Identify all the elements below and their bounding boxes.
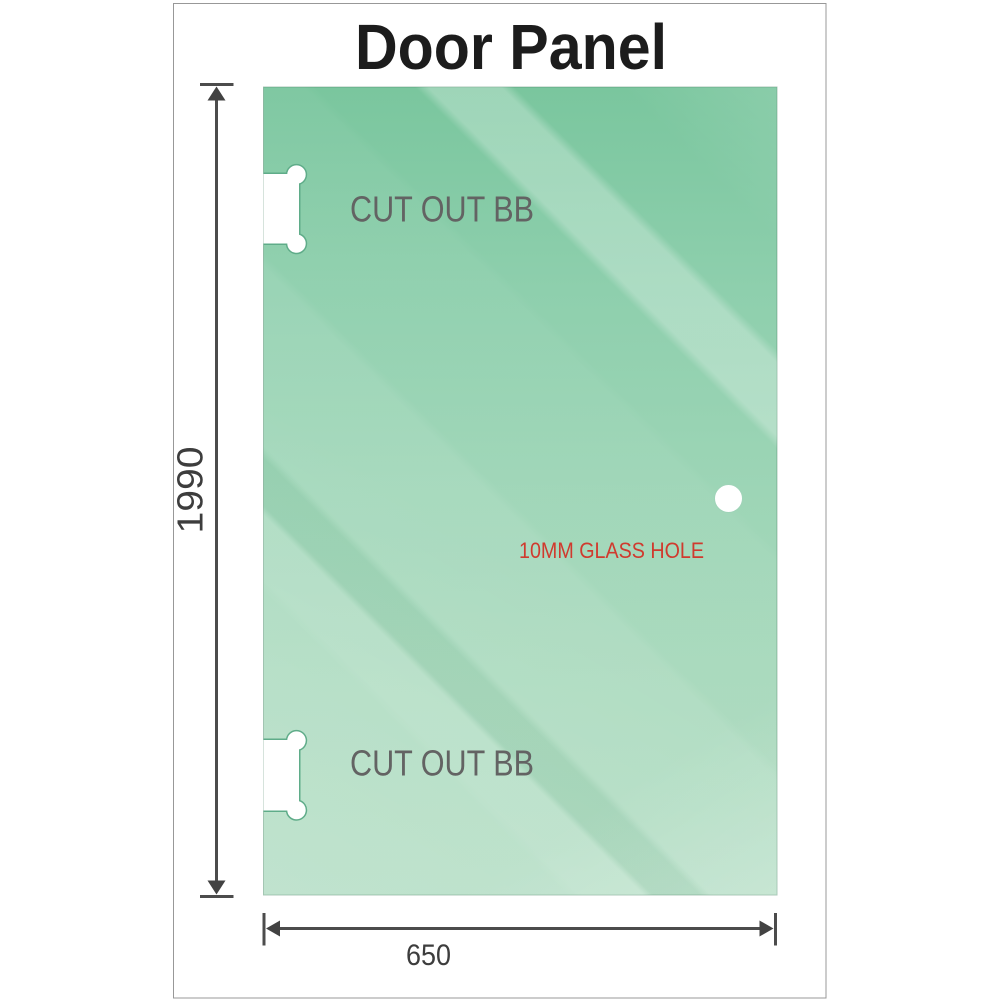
- svg-text:Door Panel: Door Panel: [355, 11, 667, 83]
- svg-text:CUT OUT BB: CUT OUT BB: [350, 189, 534, 230]
- svg-text:10MM GLASS HOLE: 10MM GLASS HOLE: [519, 538, 704, 563]
- svg-text:650: 650: [406, 939, 451, 972]
- svg-text:1990: 1990: [170, 447, 211, 534]
- svg-text:CUT OUT BB: CUT OUT BB: [350, 743, 534, 784]
